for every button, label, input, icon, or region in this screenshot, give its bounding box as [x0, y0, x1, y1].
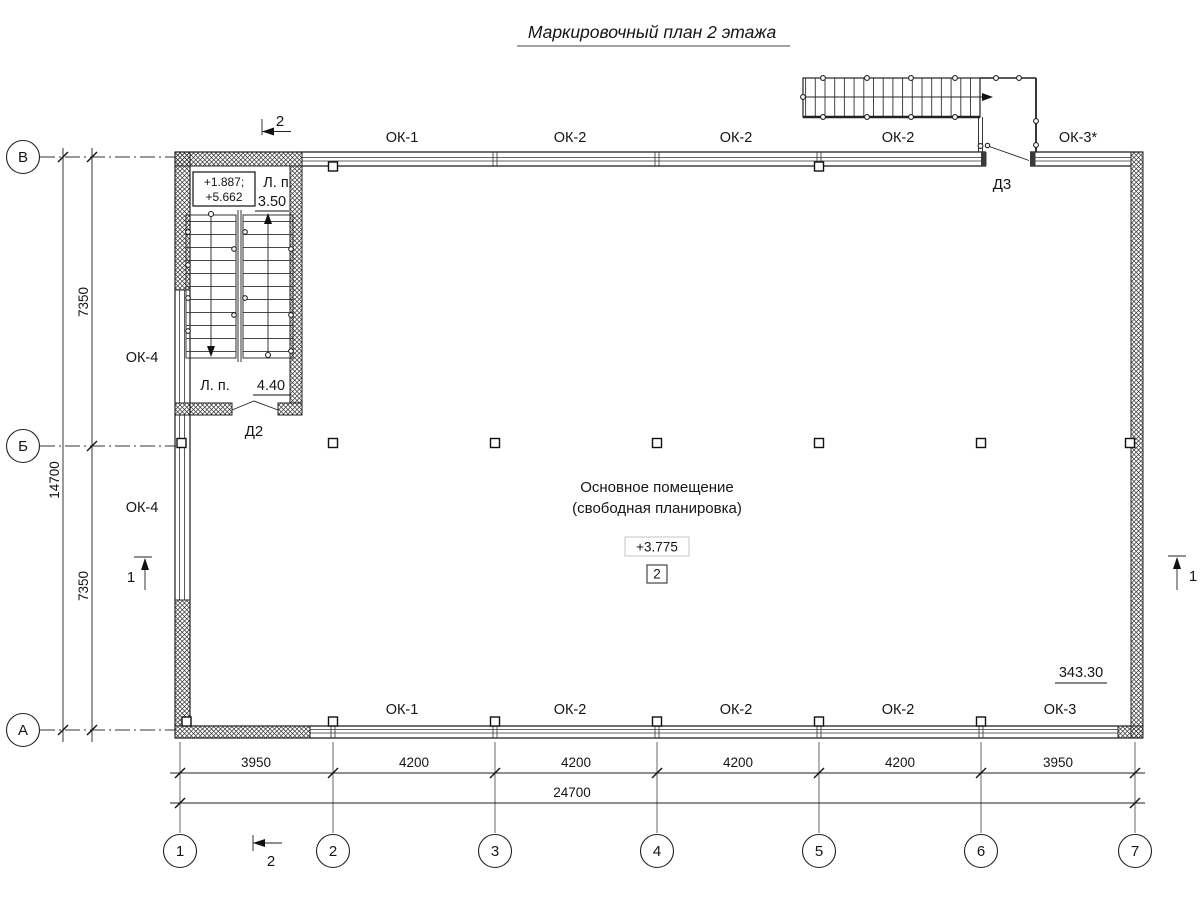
bottom-wall-mullions [331, 726, 983, 738]
stair-landing-abbr-top: Л. п. [263, 175, 292, 191]
column-bottom-3 [491, 717, 500, 726]
room-name-line2: (свободная планировка) [572, 500, 742, 517]
column-b6 [977, 439, 986, 448]
window-label-bottom-1: ОК-1 [386, 702, 419, 718]
section1-right-label: 1 [1189, 568, 1197, 585]
stair-landing-abbr-bottom: Л. п. [200, 378, 229, 394]
section2-top-label: 2 [276, 113, 284, 130]
dim-left-1: 7350 [76, 287, 91, 317]
dim-bottom-6: 3950 [1043, 755, 1073, 770]
col-axis-label-3: 3 [491, 843, 499, 860]
section2-top-arrow [262, 128, 274, 136]
drawing-title: Маркировочный план 2 этажа [517, 22, 790, 46]
window-label-top-3: ОК-2 [720, 130, 753, 146]
col-axis-label-4: 4 [653, 843, 661, 860]
column-top-5 [815, 162, 824, 171]
dim-bottom-total: 24700 [553, 785, 591, 800]
top-window-glazing [302, 158, 1131, 162]
walkline-down-start [209, 212, 214, 217]
col-axis-label-5: 5 [815, 843, 823, 860]
d3-door-leaf [988, 146, 1029, 161]
column-b7-wall [1126, 439, 1135, 448]
stair-landing-value-top: 3.50 [258, 194, 286, 210]
bottom-wall-hatch-right [1118, 726, 1143, 738]
d3-right-jamb [1030, 152, 1036, 166]
window-label-top-5: ОК-3* [1059, 130, 1098, 146]
column-top-2 [329, 162, 338, 171]
dim-bottom-3: 4200 [561, 755, 591, 770]
room-elevation: +3.775 [636, 540, 678, 555]
col-axis-label-7: 7 [1131, 843, 1139, 860]
walkline-up-start [266, 353, 271, 358]
col-axis-bubbles: 1 2 3 4 5 6 7 [164, 835, 1152, 868]
column-b4 [653, 439, 662, 448]
stair-landing-value-bottom: 4.40 [257, 378, 285, 394]
column-markers [177, 162, 1135, 726]
bottom-window-glazing [310, 730, 1118, 734]
col-axis-label-1: 1 [176, 843, 184, 860]
left-dim-lines [63, 148, 92, 742]
stair-top-wall-hatch [175, 152, 302, 166]
left-dimensions: 7350 7350 14700 В Б А [7, 141, 177, 747]
external-stair: Д3 [801, 76, 1039, 193]
d2-door-swing [232, 401, 278, 410]
ladder-walkline-arrow [982, 93, 993, 101]
section2-bottom-label: 2 [267, 853, 275, 870]
section1-left-arrow [141, 558, 149, 570]
window-label-bottom-2: ОК-2 [554, 702, 587, 718]
top-wall-mullions [493, 152, 821, 166]
window-label-top-1: ОК-1 [386, 130, 419, 146]
dim-bottom-1: 3950 [241, 755, 271, 770]
section2-bottom-arrow [253, 839, 265, 847]
window-label-left-1: ОК-4 [126, 350, 159, 366]
window-label-top-4: ОК-2 [882, 130, 915, 146]
room-number: 2 [653, 567, 661, 582]
stair-gap-lines [238, 210, 241, 362]
col-axis-label-6: 6 [977, 843, 985, 860]
d3-left-jamb [981, 152, 987, 166]
left-wall-hatch-bottom [175, 600, 190, 726]
internal-stair: +1.887; +5.662 Л. п. 3.50 Л. п. 4.40 Д2 [186, 172, 294, 440]
window-label-left-2: ОК-4 [126, 500, 159, 516]
stair-level-line2: +5.662 [205, 190, 242, 204]
window-label-top-2: ОК-2 [554, 130, 587, 146]
bottom-dimensions: 3950 4200 4200 4200 4200 3950 24700 1 2 … [164, 742, 1152, 868]
room-name-line1: Основное помещение [580, 479, 734, 496]
window-label-bottom-4: ОК-2 [882, 702, 915, 718]
stair-bottom-wall-right-hatch [278, 403, 302, 415]
room-annotation: Основное помещение (свободная планировка… [572, 479, 1107, 683]
row-axis-label-b: Б [18, 438, 28, 455]
area-mark: 343.30 [1059, 665, 1103, 681]
bottom-dim-lines [170, 773, 1145, 803]
column-bottom-2 [329, 717, 338, 726]
column-bottom-4 [653, 717, 662, 726]
row-axis-lines [40, 157, 176, 730]
column-b2 [329, 439, 338, 448]
dim-bottom-4: 4200 [723, 755, 753, 770]
dim-bottom-5: 4200 [885, 755, 915, 770]
column-b5 [815, 439, 824, 448]
column-b1-wall [177, 439, 186, 448]
stair-bottom-wall-left-hatch [175, 403, 232, 415]
column-b3 [491, 439, 500, 448]
dim-bottom-2: 4200 [399, 755, 429, 770]
floor-plan: Маркировочный план 2 этажа [0, 0, 1200, 900]
dim-left-2: 7350 [76, 571, 91, 601]
column-bottom-6 [977, 717, 986, 726]
bottom-wall-hatch-left [175, 726, 310, 738]
section1-right-arrow [1173, 557, 1181, 569]
ladder-body [803, 78, 980, 117]
row-axis-label-v: В [18, 149, 28, 166]
section1-left-lines [134, 557, 152, 590]
window-label-bottom-5: ОК-3 [1044, 702, 1077, 718]
stair-level-line1: +1.887; [204, 175, 244, 189]
section1-left-label: 1 [127, 569, 135, 586]
d3-door-hinge [985, 143, 989, 147]
d2-label: Д2 [245, 423, 264, 440]
column-bottom-1 [182, 717, 191, 726]
col-axis-label-2: 2 [329, 843, 337, 860]
col-axis-extension-lines [180, 742, 1135, 833]
window-label-bottom-3: ОК-2 [720, 702, 753, 718]
column-bottom-5 [815, 717, 824, 726]
dim-left-total: 14700 [47, 461, 62, 499]
d3-label: Д3 [993, 176, 1012, 193]
bottom-dim-ticks [175, 768, 1140, 808]
row-axis-label-a: А [18, 722, 28, 739]
page-title: Маркировочный план 2 этажа [528, 22, 777, 42]
left-dim-ticks [58, 152, 97, 735]
